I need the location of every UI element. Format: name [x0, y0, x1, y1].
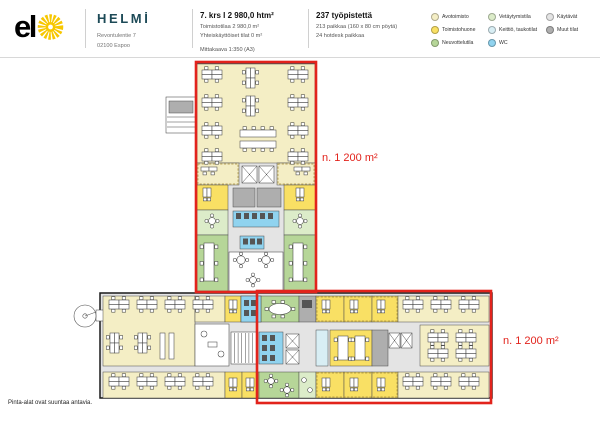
- area-annotation-wing: n. 1 200 m²: [503, 335, 559, 347]
- floor-scale-line: Mittakaava 1:350 (A3): [200, 46, 274, 55]
- header-divider: [192, 9, 193, 48]
- floor-title: 7. krs I 2 980,0 htm²: [200, 11, 274, 20]
- legend-item: Avotoimisto: [431, 13, 488, 21]
- legend-color-dot: [546, 26, 554, 34]
- workstation-line1: 213 paikkaa (160 x 80 cm pöytä): [316, 23, 397, 32]
- legend-item: Muut tilat: [546, 26, 600, 34]
- floor-shared-line: Yhteiskäyttöiset tilat 0 m²: [200, 32, 274, 41]
- legend-item: Vetäytymistila: [488, 13, 546, 21]
- legend-item: Toimistohuone: [431, 26, 488, 34]
- staircase: [231, 332, 257, 364]
- legend-label: Neuvottelutila: [442, 40, 473, 46]
- legend-item: Keittiö, taukotilat: [488, 26, 546, 34]
- legend-label: Vetäytymistila: [499, 14, 531, 20]
- legend-label: Muut tilat: [557, 27, 578, 33]
- header: el HELMİ Revontulentie 7 02100 Espoo 7. …: [0, 0, 600, 58]
- legend-label: Käytävät: [557, 14, 577, 20]
- elo-sun-icon: [37, 13, 64, 40]
- legend-item: WC: [488, 39, 546, 47]
- legend-color-dot: [431, 39, 439, 47]
- floor-plan: n. 1 200 m² n. 1 200 m²: [0, 0, 600, 422]
- workstation-title: 237 työpistettä: [316, 11, 397, 20]
- workstation-stats-block: 237 työpistettä 213 paikkaa (160 x 80 cm…: [316, 11, 397, 40]
- workstation-line2: 24 hotdesk paikkaa: [316, 32, 397, 41]
- elo-logo: el: [14, 13, 64, 40]
- building-name: HELMİ: [97, 11, 150, 26]
- legend-color-dot: [431, 26, 439, 34]
- legend-label: Toimistohuone: [442, 27, 475, 33]
- area-annotation-tower: n. 1 200 m²: [322, 152, 378, 164]
- legend-label: Avotoimisto: [442, 14, 469, 20]
- floor-stats-block: 7. krs I 2 980,0 htm² Toimistotilaa 2 98…: [200, 11, 274, 55]
- legend-color-dot: [488, 13, 496, 21]
- header-divider: [308, 9, 309, 48]
- legend-color-dot: [546, 13, 554, 21]
- footer-note: Pinta-alat ovat suuntaa antavia.: [8, 400, 92, 406]
- legend-color-dot: [488, 39, 496, 47]
- legend-color-dot: [488, 26, 496, 34]
- legend-item: Neuvottelutila: [431, 39, 488, 47]
- building-address-line1: Revontulentie 7: [97, 32, 150, 41]
- room-type-legend: Avotoimisto Toimistohuone Neuvottelutila…: [431, 10, 600, 49]
- floor-area-line: Toimistotilaa 2 980,0 m²: [200, 23, 274, 32]
- header-divider: [85, 9, 86, 48]
- building-block: HELMİ Revontulentie 7 02100 Espoo: [97, 11, 150, 51]
- legend-label: WC: [499, 40, 508, 46]
- legend-label: Keittiö, taukotilat: [499, 27, 537, 33]
- legend-color-dot: [431, 13, 439, 21]
- elo-logo-text: el: [14, 14, 35, 40]
- legend-item: Käytävät: [546, 13, 600, 21]
- building-address-line2: 02100 Espoo: [97, 42, 150, 51]
